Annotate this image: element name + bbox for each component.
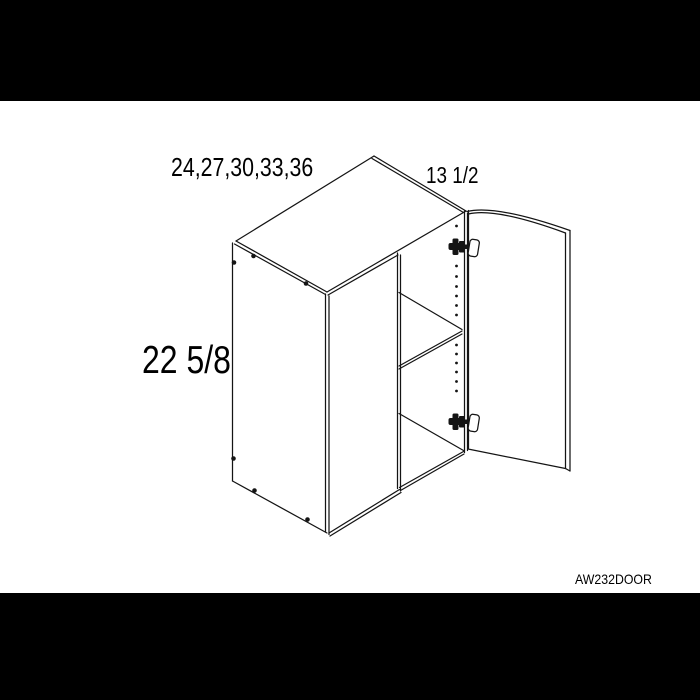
cabinet-line-drawing (0, 0, 700, 700)
cabinet-left-side-panel (233, 243, 328, 533)
depth-dimension-label: 13 1/2 (426, 164, 478, 187)
cabinet-shelf (399, 293, 462, 370)
height-dimension-label: 22 5/8 (142, 341, 231, 380)
product-code-label: AW232DOOR (575, 572, 652, 586)
closed-left-door (328, 253, 401, 536)
open-right-door (467, 210, 570, 471)
width-dimension-label: 24,27,30,33,36 (171, 154, 313, 180)
side-panel-screw-holes (231, 254, 310, 522)
